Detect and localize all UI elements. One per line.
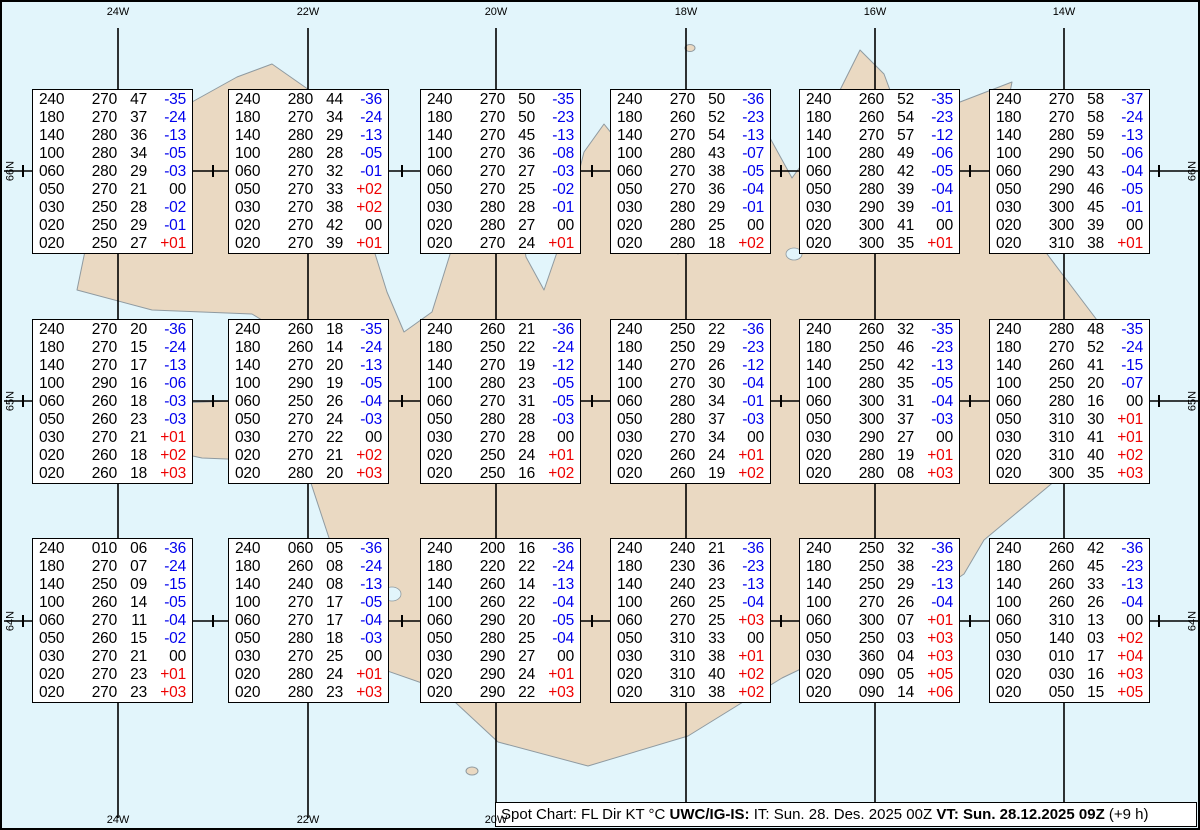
flight-level-value: 050 (617, 630, 651, 648)
spot-row: 0302702800 (427, 429, 574, 447)
flight-level-value: 180 (806, 558, 840, 576)
flight-level-value: 020 (235, 666, 269, 684)
flight-level-value: 020 (235, 465, 269, 483)
temperature-value: +01 (147, 429, 186, 447)
wind-speed-value: 43 (695, 145, 725, 163)
spot-row: 24026018-35 (235, 321, 382, 339)
flight-level-value: 240 (39, 540, 73, 558)
spot-row: 14026014-13 (427, 576, 574, 594)
temperature-value: +01 (914, 612, 953, 630)
temperature-value: +02 (343, 199, 382, 217)
wind-speed-value: 03 (1074, 630, 1104, 648)
wind-direction-value: 270 (651, 612, 695, 630)
wind-speed-value: 16 (117, 375, 147, 393)
wind-speed-value: 25 (505, 181, 535, 199)
wind-speed-value: 41 (1074, 357, 1104, 375)
wind-direction-value: 280 (651, 145, 695, 163)
spot-row: 02027023+01 (39, 666, 186, 684)
wind-direction-value: 280 (651, 199, 695, 217)
flight-level-value: 050 (427, 181, 461, 199)
spot-row: 18026052-23 (617, 109, 764, 127)
spot-row: 18027050-23 (427, 109, 574, 127)
wind-speed-value: 29 (695, 199, 725, 217)
spot-row: 05027033+02 (235, 181, 382, 199)
flight-level-value: 030 (996, 429, 1030, 447)
spot-row: 10028028-05 (235, 145, 382, 163)
wind-speed-value: 38 (695, 163, 725, 181)
spot-row: 03036004+03 (806, 648, 953, 666)
temperature-value: -03 (725, 411, 764, 429)
wind-speed-value: 21 (117, 429, 147, 447)
temperature-value: +06 (914, 684, 953, 702)
temperature-value: 00 (343, 217, 382, 235)
wind-direction-value: 360 (840, 648, 884, 666)
wind-speed-value: 26 (313, 393, 343, 411)
temperature-value: 00 (1104, 217, 1143, 235)
wind-speed-value: 17 (117, 357, 147, 375)
wind-speed-value: 34 (313, 109, 343, 127)
wind-direction-value: 250 (840, 558, 884, 576)
flight-level-value: 060 (427, 163, 461, 181)
spot-row: 14027026-12 (617, 357, 764, 375)
flight-level-value: 140 (996, 357, 1030, 375)
spot-row: 10029019-05 (235, 375, 382, 393)
spot-row: 06027038-05 (617, 163, 764, 181)
spot-row: 02009005+05 (806, 666, 953, 684)
wind-speed-value: 52 (1074, 339, 1104, 357)
wind-speed-value: 22 (505, 594, 535, 612)
flight-level-value: 100 (617, 375, 651, 393)
temperature-value: -03 (535, 163, 574, 181)
temperature-value: -23 (914, 558, 953, 576)
wind-speed-value: 24 (505, 447, 535, 465)
wind-direction-value: 310 (1030, 235, 1074, 253)
flight-level-value: 060 (996, 612, 1030, 630)
wind-speed-value: 14 (117, 594, 147, 612)
spot-row: 10026022-04 (427, 594, 574, 612)
temperature-value: +01 (725, 447, 764, 465)
wind-speed-value: 24 (313, 411, 343, 429)
temperature-value: +01 (535, 235, 574, 253)
wind-direction-value: 250 (73, 576, 117, 594)
wind-direction-value: 290 (461, 648, 505, 666)
temperature-value: -03 (343, 630, 382, 648)
spot-data-box: 24020016-3618022022-2414026014-131002602… (420, 538, 581, 703)
wind-direction-value: 250 (73, 235, 117, 253)
spot-row: 18026008-24 (235, 558, 382, 576)
wind-speed-value: 39 (884, 199, 914, 217)
wind-direction-value: 270 (461, 163, 505, 181)
spot-data-box: 24025032-3618025038-2314025029-131002702… (799, 538, 960, 703)
spot-row: 0502702100 (39, 181, 186, 199)
temperature-value: -04 (1104, 594, 1143, 612)
wind-speed-value: 20 (313, 357, 343, 375)
wind-direction-value: 300 (1030, 199, 1074, 217)
flight-level-value: 030 (39, 199, 73, 217)
temperature-value: 00 (147, 181, 186, 199)
wind-speed-value: 41 (884, 217, 914, 235)
flight-level-value: 240 (617, 540, 651, 558)
spot-data-box: 24026032-3518025046-2314025042-131002803… (799, 319, 960, 484)
wind-speed-value: 19 (884, 447, 914, 465)
wind-direction-value: 250 (73, 199, 117, 217)
caption-bold-text: UWC/IG-IS: (670, 806, 750, 823)
wind-speed-value: 39 (1074, 217, 1104, 235)
wind-speed-value: 38 (1074, 235, 1104, 253)
wind-speed-value: 43 (1074, 163, 1104, 181)
wind-direction-value: 270 (73, 181, 117, 199)
temperature-value: +05 (914, 666, 953, 684)
flight-level-value: 020 (996, 217, 1030, 235)
flight-level-value: 020 (427, 235, 461, 253)
spot-row: 02025024+01 (427, 447, 574, 465)
wind-direction-value: 260 (651, 109, 695, 127)
flight-level-value: 050 (427, 630, 461, 648)
flight-level-value: 020 (235, 217, 269, 235)
spot-row: 10027026-04 (806, 594, 953, 612)
temperature-value: -01 (147, 217, 186, 235)
wind-speed-value: 31 (505, 393, 535, 411)
spot-row: 18027015-24 (39, 339, 186, 357)
spot-row: 10027036-08 (427, 145, 574, 163)
wind-speed-value: 34 (695, 393, 725, 411)
flight-level-value: 050 (39, 181, 73, 199)
wind-speed-value: 20 (117, 321, 147, 339)
spot-row: 18023036-23 (617, 558, 764, 576)
wind-direction-value: 280 (269, 127, 313, 145)
spot-row: 05029046-05 (996, 181, 1143, 199)
wind-direction-value: 270 (73, 91, 117, 109)
spot-row: 05027024-03 (235, 411, 382, 429)
wind-direction-value: 280 (269, 630, 313, 648)
spot-row: 24026021-36 (427, 321, 574, 339)
flight-level-value: 180 (427, 558, 461, 576)
temperature-value: +02 (343, 447, 382, 465)
spot-row: 02009014+06 (806, 684, 953, 702)
temperature-value: -13 (147, 357, 186, 375)
temperature-value: +03 (147, 465, 186, 483)
wind-direction-value: 280 (840, 465, 884, 483)
flight-level-value: 020 (996, 684, 1030, 702)
wind-direction-value: 280 (461, 411, 505, 429)
flight-level-value: 180 (617, 339, 651, 357)
spot-row: 02028018+02 (617, 235, 764, 253)
wind-speed-value: 54 (695, 127, 725, 145)
wind-speed-value: 30 (1074, 411, 1104, 429)
wind-direction-value: 090 (840, 684, 884, 702)
temperature-value: 00 (725, 429, 764, 447)
wind-direction-value: 300 (840, 393, 884, 411)
temperature-value: -03 (147, 411, 186, 429)
flight-level-value: 020 (617, 235, 651, 253)
flight-level-value: 020 (617, 666, 651, 684)
temperature-value: -24 (535, 339, 574, 357)
spot-row: 14025029-13 (806, 576, 953, 594)
temperature-value: -24 (1104, 339, 1143, 357)
wind-speed-value: 39 (313, 235, 343, 253)
flight-level-value: 240 (806, 540, 840, 558)
temperature-value: -06 (147, 375, 186, 393)
spot-data-box: 24028044-3618027034-2414028029-131002802… (228, 89, 389, 254)
wind-direction-value: 310 (1030, 429, 1074, 447)
temperature-value: +02 (725, 235, 764, 253)
temperature-value: -35 (914, 321, 953, 339)
temperature-value: -13 (1104, 127, 1143, 145)
chart-caption: Spot Chart: FL Dir KT °C UWC/IG-IS: IT: … (495, 802, 1197, 827)
temperature-value: -13 (914, 576, 953, 594)
wind-direction-value: 280 (840, 163, 884, 181)
spot-row: 18026054-23 (806, 109, 953, 127)
wind-direction-value: 250 (840, 540, 884, 558)
spot-row: 18026045-23 (996, 558, 1143, 576)
temperature-value: -23 (725, 339, 764, 357)
wind-direction-value: 250 (269, 393, 313, 411)
flight-level-value: 240 (806, 321, 840, 339)
wind-speed-value: 52 (695, 109, 725, 127)
flight-level-value: 060 (39, 163, 73, 181)
temperature-value: -01 (1104, 199, 1143, 217)
temperature-value: -23 (725, 558, 764, 576)
wind-direction-value: 260 (1030, 357, 1074, 375)
wind-direction-value: 280 (269, 684, 313, 702)
temperature-value: -36 (725, 321, 764, 339)
spot-row: 0302902700 (427, 648, 574, 666)
flight-level-value: 020 (806, 217, 840, 235)
wind-direction-value: 260 (461, 576, 505, 594)
wind-speed-value: 18 (117, 465, 147, 483)
wind-speed-value: 08 (313, 558, 343, 576)
wind-speed-value: 17 (313, 594, 343, 612)
wind-direction-value: 300 (840, 217, 884, 235)
temperature-value: -06 (1104, 145, 1143, 163)
wind-speed-value: 27 (505, 217, 535, 235)
flight-level-value: 020 (235, 235, 269, 253)
flight-level-value: 020 (996, 447, 1030, 465)
flight-level-value: 050 (996, 411, 1030, 429)
flight-level-value: 050 (235, 181, 269, 199)
wind-speed-value: 36 (117, 127, 147, 145)
temperature-value: -13 (535, 576, 574, 594)
wind-speed-value: 07 (117, 558, 147, 576)
temperature-value: -24 (343, 109, 382, 127)
flight-level-value: 020 (806, 235, 840, 253)
temperature-value: -36 (343, 91, 382, 109)
wind-direction-value: 260 (840, 109, 884, 127)
wind-direction-value: 270 (461, 109, 505, 127)
spot-row: 06029020-05 (427, 612, 574, 630)
spot-row: 24024021-36 (617, 540, 764, 558)
wind-speed-value: 07 (884, 612, 914, 630)
wind-speed-value: 18 (313, 321, 343, 339)
wind-direction-value: 250 (840, 630, 884, 648)
wind-direction-value: 270 (461, 181, 505, 199)
spot-row: 10026025-04 (617, 594, 764, 612)
spot-row: 02027021+02 (235, 447, 382, 465)
spot-row: 02031040+02 (996, 447, 1143, 465)
wind-speed-value: 40 (1074, 447, 1104, 465)
wind-direction-value: 240 (651, 576, 695, 594)
wind-speed-value: 29 (117, 217, 147, 235)
flight-level-value: 050 (235, 630, 269, 648)
spot-row: 10029050-06 (996, 145, 1143, 163)
flight-level-value: 050 (806, 630, 840, 648)
wind-speed-value: 23 (117, 684, 147, 702)
wind-direction-value: 310 (651, 630, 695, 648)
flight-level-value: 240 (235, 540, 269, 558)
flight-level-value: 180 (806, 109, 840, 127)
flight-level-value: 140 (235, 127, 269, 145)
flight-level-value: 140 (427, 127, 461, 145)
wind-direction-value: 260 (651, 465, 695, 483)
wind-speed-value: 18 (695, 235, 725, 253)
temperature-value: +04 (1104, 648, 1143, 666)
temperature-value: -35 (147, 91, 186, 109)
spot-row: 0302702200 (235, 429, 382, 447)
wind-direction-value: 260 (73, 393, 117, 411)
flight-level-value: 060 (235, 612, 269, 630)
wind-speed-value: 11 (117, 612, 147, 630)
flight-level-value: 050 (996, 181, 1030, 199)
spot-row: 02026018+03 (39, 465, 186, 483)
wind-speed-value: 38 (695, 648, 725, 666)
flight-level-value: 060 (235, 163, 269, 181)
wind-speed-value: 17 (313, 612, 343, 630)
spot-row: 18027058-24 (996, 109, 1143, 127)
temperature-value: -37 (1104, 91, 1143, 109)
wind-direction-value: 300 (840, 411, 884, 429)
temperature-value: +01 (1104, 411, 1143, 429)
wind-direction-value: 290 (461, 684, 505, 702)
flight-level-value: 020 (39, 666, 73, 684)
temperature-value: -36 (1104, 540, 1143, 558)
flight-level-value: 020 (806, 666, 840, 684)
wind-direction-value: 270 (651, 357, 695, 375)
temperature-value: -13 (343, 127, 382, 145)
wind-speed-value: 26 (1074, 594, 1104, 612)
wind-direction-value: 290 (1030, 145, 1074, 163)
flight-level-value: 100 (235, 145, 269, 163)
wind-direction-value: 260 (73, 465, 117, 483)
temperature-value: -03 (914, 411, 953, 429)
flight-level-value: 020 (996, 465, 1030, 483)
spot-data-box: 24027050-3618026052-2314027054-131002804… (610, 89, 771, 254)
flight-level-value: 240 (235, 321, 269, 339)
flight-level-value: 100 (996, 594, 1030, 612)
flight-level-value: 240 (39, 321, 73, 339)
wind-direction-value: 030 (1030, 666, 1074, 684)
spot-row: 14027017-13 (39, 357, 186, 375)
flight-level-value: 030 (235, 429, 269, 447)
flight-level-value: 100 (996, 145, 1030, 163)
flight-level-value: 060 (996, 393, 1030, 411)
temperature-value: -23 (1104, 558, 1143, 576)
temperature-value: -13 (147, 127, 186, 145)
wind-direction-value: 090 (840, 666, 884, 684)
wind-direction-value: 290 (1030, 163, 1074, 181)
flight-level-value: 020 (427, 666, 461, 684)
spot-row: 02027039+01 (235, 235, 382, 253)
flight-level-value: 030 (39, 648, 73, 666)
wind-speed-value: 48 (1074, 321, 1104, 339)
spot-row: 02029022+03 (427, 684, 574, 702)
temperature-value: +03 (535, 684, 574, 702)
flight-level-value: 030 (427, 199, 461, 217)
spot-row: 02031038+02 (617, 684, 764, 702)
temperature-value: -36 (914, 540, 953, 558)
longitude-label-top: 22W (297, 6, 320, 18)
wind-direction-value: 270 (269, 648, 313, 666)
wind-direction-value: 280 (73, 145, 117, 163)
flight-level-value: 020 (427, 465, 461, 483)
wind-direction-value: 290 (461, 666, 505, 684)
wind-speed-value: 22 (505, 684, 535, 702)
spot-row: 0203003900 (996, 217, 1143, 235)
wind-speed-value: 33 (695, 630, 725, 648)
temperature-value: -24 (343, 558, 382, 576)
spot-row: 0603101300 (996, 612, 1143, 630)
spot-row: 02028008+03 (806, 465, 953, 483)
flight-level-value: 240 (996, 321, 1030, 339)
wind-direction-value: 290 (840, 429, 884, 447)
wind-speed-value: 30 (695, 375, 725, 393)
wind-direction-value: 280 (73, 127, 117, 145)
temperature-value: +03 (1104, 666, 1143, 684)
wind-direction-value: 240 (651, 540, 695, 558)
wind-direction-value: 260 (1030, 594, 1074, 612)
wind-speed-value: 59 (1074, 127, 1104, 145)
wind-speed-value: 06 (117, 540, 147, 558)
wind-speed-value: 38 (313, 199, 343, 217)
temperature-value: -04 (725, 181, 764, 199)
flight-level-value: 180 (427, 109, 461, 127)
flight-level-value: 020 (617, 465, 651, 483)
wind-speed-value: 36 (695, 558, 725, 576)
spot-data-box: 24024021-3618023036-2314024023-131002602… (610, 538, 771, 703)
spot-row: 03030045-01 (996, 199, 1143, 217)
wind-speed-value: 23 (505, 375, 535, 393)
wind-speed-value: 18 (313, 630, 343, 648)
temperature-value: -04 (535, 594, 574, 612)
temperature-value: -05 (1104, 181, 1143, 199)
spot-row: 06027027-03 (427, 163, 574, 181)
flight-level-value: 050 (617, 181, 651, 199)
spot-row: 02003016+03 (996, 666, 1143, 684)
spot-row: 02029024+01 (427, 666, 574, 684)
flight-level-value: 050 (427, 411, 461, 429)
wind-direction-value: 270 (461, 127, 505, 145)
spot-row: 05027025-02 (427, 181, 574, 199)
flight-level-value: 020 (39, 465, 73, 483)
spot-row: 02030035+03 (996, 465, 1143, 483)
wind-speed-value: 29 (884, 576, 914, 594)
wind-direction-value: 260 (1030, 558, 1074, 576)
temperature-value: 00 (535, 648, 574, 666)
wind-speed-value: 22 (313, 429, 343, 447)
wind-speed-value: 21 (505, 321, 535, 339)
wind-direction-value: 280 (269, 145, 313, 163)
spot-row: 02025016+02 (427, 465, 574, 483)
temperature-value: -13 (725, 127, 764, 145)
flight-level-value: 240 (806, 91, 840, 109)
wind-direction-value: 260 (73, 630, 117, 648)
flight-level-value: 060 (806, 163, 840, 181)
wind-direction-value: 280 (651, 235, 695, 253)
wind-speed-value: 35 (884, 375, 914, 393)
wind-direction-value: 250 (461, 339, 505, 357)
flight-level-value: 050 (806, 411, 840, 429)
spot-row: 18025046-23 (806, 339, 953, 357)
wind-direction-value: 260 (269, 558, 313, 576)
